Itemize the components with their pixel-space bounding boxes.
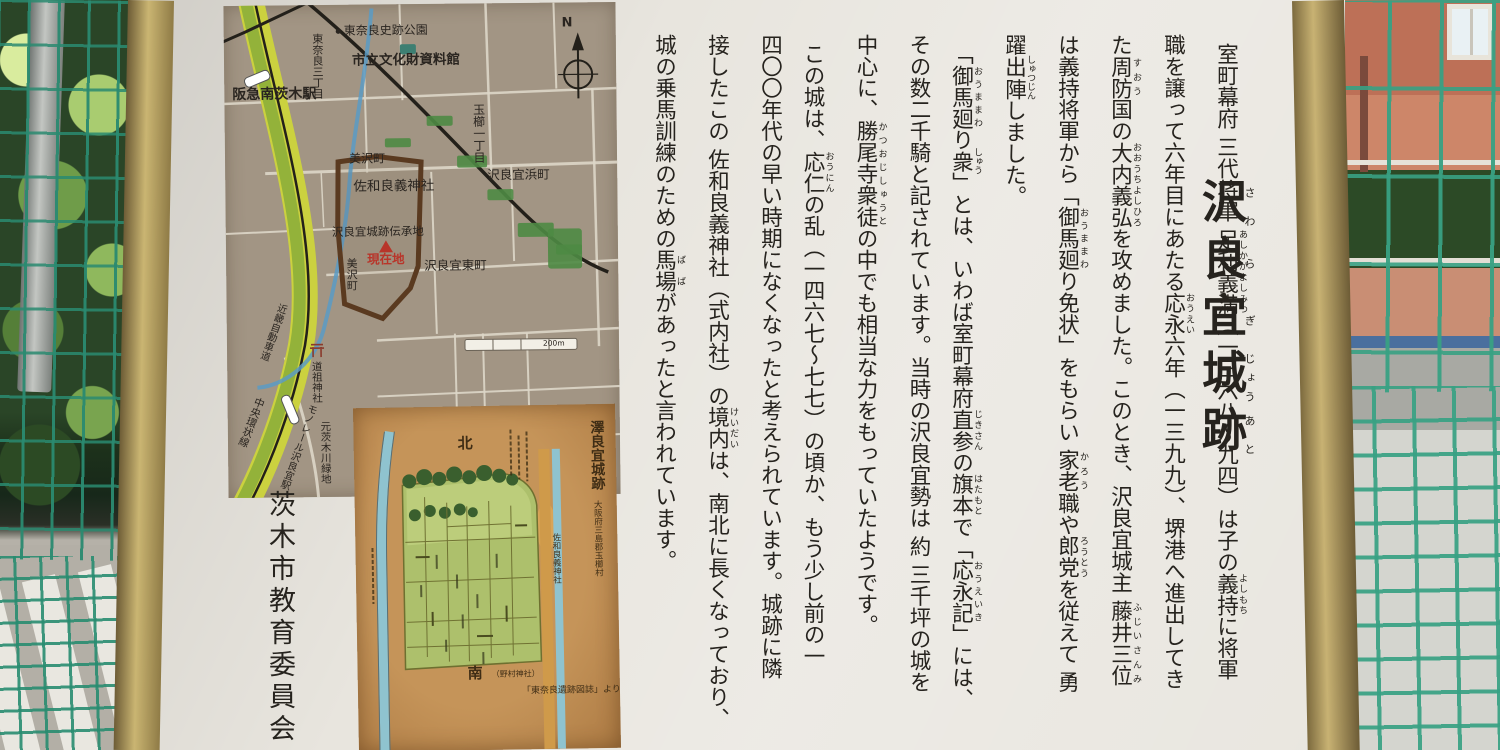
body-column: は義持将軍から「御馬廻おうままわり免状」をもらい 家老かろう職や郎党ろうとうを従… [1056, 34, 1088, 742]
map-label-historic-park: 東奈良史跡公園 [344, 24, 428, 37]
wire-fence-right [1336, 0, 1500, 393]
old-map-south-label: 南 [468, 666, 483, 681]
sign-attribution: 茨木市教育委員会 [260, 490, 299, 750]
map-label-sawaragi-higashi: 沢良宜東町 [424, 259, 487, 272]
old-map-title: 澤良宜城跡 [589, 420, 604, 490]
map-label-cultural-museum: 市立文化財資料館 [352, 54, 460, 69]
map-label-tamagushi-1: 玉櫛一丁目 [472, 103, 485, 163]
map-label-higashinara-3: 東奈良三丁目 [312, 33, 324, 99]
old-map-river-right [556, 449, 562, 749]
body-column: 職を譲って六年目にあたる応永おうえい六年（一三九九）、堺港へ進出してき [1162, 34, 1194, 742]
old-map-south-note: （野村神社） [492, 670, 540, 679]
body-column: 「御馬廻おうままわり衆しゅう」とは、いわば室町幕府直参じきさんの旗本はたもとで「… [950, 34, 982, 742]
north-label: N [562, 16, 573, 29]
map-label-misawa-cho: 美沢町 [349, 152, 385, 164]
poi-dot [336, 29, 341, 34]
body-column: 城の乗馬訓練のための馬場ばばがあったと言われています。 [653, 34, 685, 742]
scale-label: 200m [543, 340, 565, 348]
map-label-sawaragi-shrine: 佐和良義神社 [353, 180, 434, 194]
map-label-misawa-cho-2: 美沢町 [346, 258, 357, 291]
body-column: 躍出陣しゅつじんしました。 [1003, 34, 1035, 742]
body-column: 室町幕府 三代将軍 足利義満あしかがよしみつ（一三六八～九四）は子の義持よしもち… [1215, 34, 1247, 742]
sign-body-text: 室町幕府 三代将軍 足利義満あしかがよしみつ（一三六八～九四）は子の義持よしもち… [632, 34, 1247, 742]
old-map-shrine-label: 佐和良義神社 [551, 533, 560, 584]
map-label-castle-site-area: 沢良宜城跡伝承地 [332, 226, 424, 238]
old-illustrated-map: 北 澤良宜城跡 大阪府三島郡玉櫛村 佐和良義神社 南 （野村神社） 「東奈良遺跡… [353, 404, 621, 750]
old-map-graphics [353, 404, 621, 750]
body-column: この城は、応仁おうにんの乱（一四六七～七七）の頃か、もう少し前の一 [802, 34, 834, 742]
you-are-here-label: 現在地 [367, 253, 405, 266]
old-map-road-strip [544, 449, 550, 749]
map-label-sawaragi-hama: 沢良宜浜町 [487, 169, 550, 182]
body-column: 中心に、勝尾寺衆徒かつおじしゅうとの中でも相当な力をもっていたようです。 [855, 34, 887, 742]
map-label-hankyu-station: 阪急南茨木駅 [232, 87, 316, 102]
wire-fence-right-lower [1338, 386, 1500, 750]
photo-scene: N 阪急南茨木駅 東奈良史跡公園 市立文化財資料館 東奈良三丁目 玉櫛一丁目 美… [0, 0, 1500, 750]
map-label-doso-shrine: 道祖神社 [311, 361, 322, 403]
body-column: その数二千騎と記されています。当時の沢良宜勢は 約 三千坪の城を [908, 34, 930, 742]
body-column: た周防すおう国の大内義弘おおうちよしひろを攻めました。このとき、沢良宜城主 藤井… [1109, 34, 1141, 742]
map-label-moto-ibarakigawa-ryokuchi: 元茨木川緑地 [320, 421, 331, 484]
old-map-north-label: 北 [458, 436, 473, 451]
old-map-subtitle: 大阪府三島郡玉櫛村 [593, 500, 603, 577]
old-map-caption: 「東奈良遺跡図誌」より [522, 686, 621, 697]
body-column: 四〇〇年代の早い時期になくなったと考えられています。城跡に隣 [759, 34, 781, 742]
wire-fence-left [0, 0, 138, 561]
body-column: 接したこの 佐和良義神社（式内社）の境内けいだいは、南北に長くなっており、 [706, 34, 738, 742]
